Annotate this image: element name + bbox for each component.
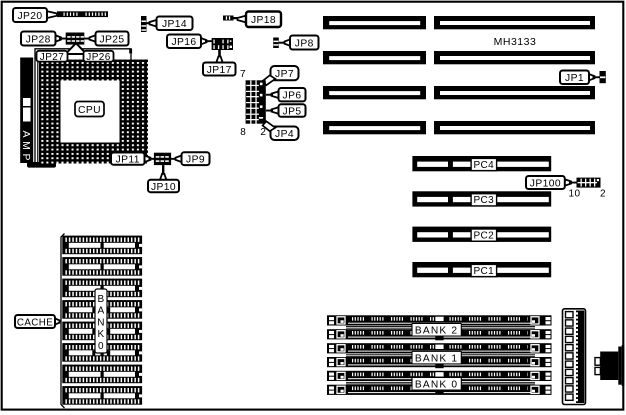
svg-text:JP18: JP18 [251, 15, 276, 26]
svg-text:JP5: JP5 [283, 106, 302, 117]
svg-text:JP28: JP28 [26, 34, 51, 45]
svg-text:N: N [97, 317, 105, 328]
svg-text:PC2: PC2 [473, 231, 494, 242]
svg-text:JP26: JP26 [86, 52, 110, 63]
svg-text:JP14: JP14 [162, 19, 187, 30]
svg-text:MH3133: MH3133 [494, 36, 537, 48]
svg-text:JP10: JP10 [151, 182, 176, 193]
svg-text:JP17: JP17 [207, 65, 232, 76]
svg-text:JP8: JP8 [295, 38, 314, 49]
svg-text:2: 2 [260, 127, 266, 138]
svg-text:PC1: PC1 [473, 266, 494, 277]
svg-text:CPU: CPU [78, 105, 101, 116]
svg-text:8: 8 [240, 127, 246, 138]
svg-text:JP7: JP7 [275, 69, 294, 80]
svg-text:BANK 2: BANK 2 [415, 325, 458, 336]
svg-text:10: 10 [569, 188, 581, 199]
svg-text:0: 0 [98, 341, 104, 352]
svg-text:K: K [97, 329, 104, 340]
svg-text:B: B [97, 294, 104, 305]
svg-text:JP16: JP16 [171, 37, 196, 48]
svg-text:JP27: JP27 [40, 52, 64, 63]
svg-text:JP4: JP4 [275, 129, 294, 140]
svg-text:JP1: JP1 [565, 73, 584, 84]
svg-text:7: 7 [240, 69, 246, 80]
svg-text:P: P [20, 153, 32, 160]
svg-text:JP9: JP9 [186, 155, 205, 166]
svg-text:BANK 0: BANK 0 [415, 379, 458, 390]
svg-text:JP25: JP25 [99, 34, 124, 45]
svg-text:PC4: PC4 [473, 160, 494, 171]
svg-text:JP6: JP6 [283, 91, 302, 102]
svg-text:JP100: JP100 [530, 178, 561, 189]
svg-text:2: 2 [600, 188, 606, 199]
svg-text:JP11: JP11 [116, 155, 140, 166]
svg-text:JP20: JP20 [17, 11, 42, 22]
svg-text:A: A [97, 306, 104, 317]
svg-text:PC3: PC3 [473, 195, 494, 206]
svg-text:A: A [20, 130, 32, 137]
svg-text:M: M [20, 141, 32, 150]
svg-text:CACHE: CACHE [17, 317, 53, 328]
svg-text:BANK 1: BANK 1 [415, 353, 458, 364]
